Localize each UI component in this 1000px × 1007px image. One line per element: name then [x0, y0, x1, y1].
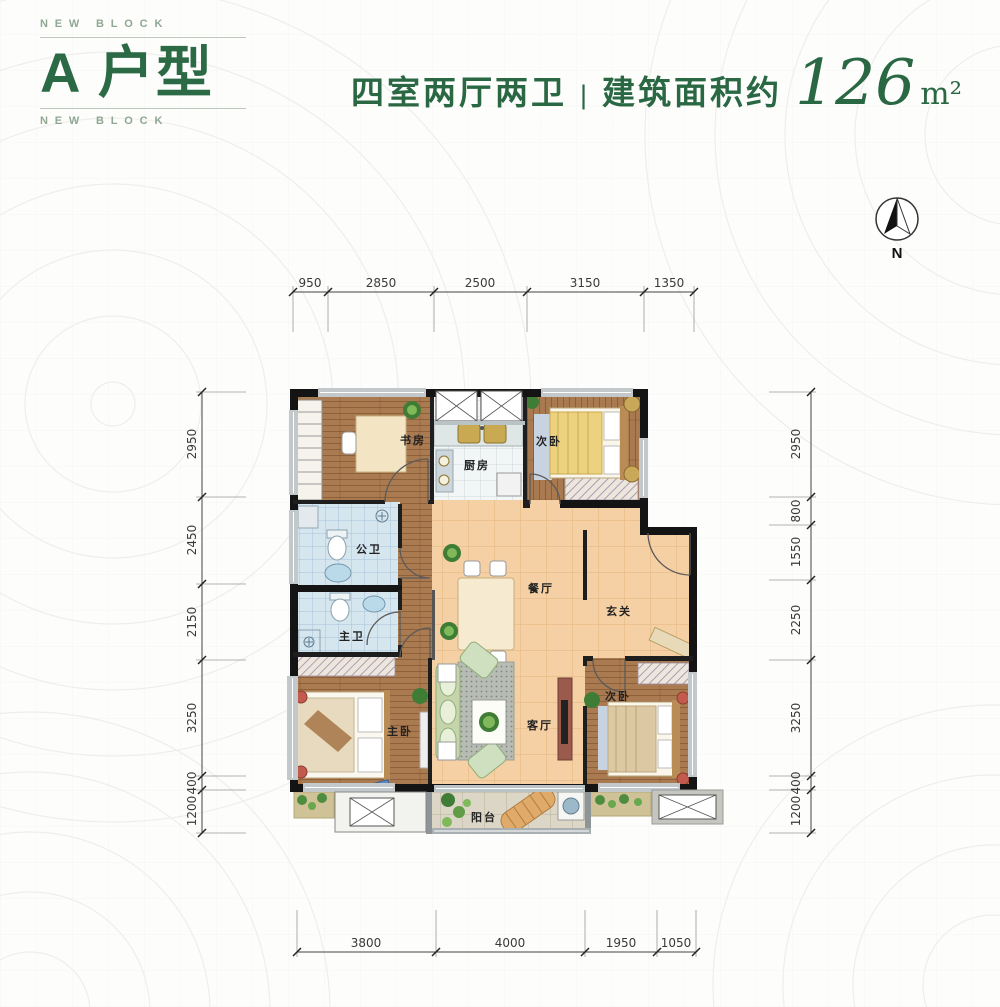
- pillow: [358, 738, 382, 772]
- desk: [356, 416, 406, 472]
- master-bedroom-label: 主卧: [387, 724, 413, 738]
- bath-cabinet: [298, 506, 318, 528]
- dim-right-5: 3250: [789, 703, 803, 734]
- dim-right-7: 1200: [789, 796, 803, 827]
- dim-top-1: 950: [299, 276, 322, 290]
- sink-icon: [458, 424, 480, 443]
- dim-top-5: 1350: [654, 276, 685, 290]
- dim-left-5: 400: [185, 772, 199, 795]
- dining-label: 餐厅: [527, 581, 554, 595]
- fridge: [497, 473, 521, 496]
- washbasin-icon: [325, 564, 351, 582]
- stool: [677, 692, 689, 704]
- study-label: 书房: [400, 433, 426, 447]
- floorplan-page: NEW BLOCK A 户型 NEW BLOCK 四室两厅两卫 | 建筑面积约 …: [0, 0, 1000, 1007]
- pillow: [358, 698, 382, 732]
- side-table: [438, 664, 456, 682]
- bedroom3-closet: [638, 663, 689, 684]
- pillow: [658, 740, 672, 768]
- plant-icon: [453, 806, 465, 818]
- plant-icon: [463, 799, 471, 807]
- area-label: 建筑面积约: [602, 66, 782, 114]
- living-label: 客厅: [526, 718, 553, 732]
- dim-left-2: 2450: [185, 525, 199, 556]
- pillow: [604, 446, 620, 474]
- headboard: [672, 700, 680, 778]
- dim-left-3: 2150: [185, 607, 199, 638]
- foyer-label: 玄关: [606, 604, 632, 618]
- nightstand: [624, 396, 640, 412]
- dim-top-4: 3150: [570, 276, 601, 290]
- spec-divider: |: [580, 80, 587, 111]
- dim-left-6: 1200: [185, 796, 199, 827]
- dresser: [420, 712, 428, 768]
- bedroom2-label: 次卧: [536, 434, 562, 448]
- area-value: 126: [795, 56, 915, 110]
- dim-top-2: 2850: [366, 276, 397, 290]
- desk-chair: [342, 432, 356, 454]
- toilet-icon: [331, 599, 349, 621]
- master-bath-label: 主卫: [339, 629, 365, 643]
- floorplan-canvas: 书房 厨房 次卧 公卫 餐厅 玄关 主卫 主卧 客厅 次卧 阳台: [0, 0, 1000, 1007]
- dim-right-6: 400: [789, 772, 803, 795]
- balcony-label: 阳台: [471, 810, 497, 824]
- washbasin-icon: [363, 596, 385, 612]
- dim-bottom-1: 3800: [351, 936, 382, 950]
- compass: N: [876, 198, 918, 262]
- dim-right-4: 2250: [789, 605, 803, 636]
- dim-top-3: 2500: [465, 276, 496, 290]
- spec-line: 四室两厅两卫 | 建筑面积约 126 m²: [351, 56, 962, 114]
- nightstand: [624, 466, 640, 482]
- toilet-icon: [328, 536, 346, 560]
- bedroom2-closet: [565, 478, 638, 500]
- bookshelf: [296, 400, 322, 500]
- brand-rule-bottom: [40, 108, 246, 109]
- brand-top-label: NEW BLOCK: [40, 18, 246, 30]
- bedroom3-label: 次卧: [605, 689, 631, 703]
- plant-icon: [441, 793, 455, 807]
- plant-icon: [584, 692, 600, 708]
- brand-block: NEW BLOCK A 户型 NEW BLOCK: [40, 18, 246, 127]
- dim-left-1: 2950: [185, 429, 199, 460]
- brand-rule-top: [40, 37, 246, 38]
- dim-bottom-4: 1050: [661, 936, 692, 950]
- layout-text: 四室两厅两卫: [351, 66, 567, 114]
- brand-bottom-label: NEW BLOCK: [40, 115, 246, 127]
- sink-icon: [484, 424, 506, 443]
- foyer-floor-upper: [585, 508, 648, 531]
- dim-bottom-3: 1950: [606, 936, 637, 950]
- dining-chair: [464, 561, 480, 576]
- plant-icon: [412, 688, 428, 704]
- dim-right-2: 800: [789, 500, 803, 523]
- dim-bottom-2: 4000: [495, 936, 526, 950]
- compass-north-label: N: [892, 245, 903, 262]
- corridor-floor: [398, 504, 432, 660]
- pillow: [658, 706, 672, 734]
- dim-left-4: 3250: [185, 703, 199, 734]
- master-closet: [294, 656, 395, 676]
- dim-right-3: 1550: [789, 537, 803, 568]
- dining-table: [458, 578, 514, 650]
- area-unit: m²: [920, 76, 962, 112]
- plant-icon: [525, 395, 539, 409]
- dim-right-1: 2950: [789, 429, 803, 460]
- tv-icon: [561, 700, 568, 744]
- side-table: [438, 742, 456, 760]
- plant-icon: [442, 817, 452, 827]
- kitchen-label: 厨房: [464, 458, 490, 472]
- dining-chair: [490, 561, 506, 576]
- unit-title: A 户型: [40, 44, 246, 101]
- pillow: [604, 412, 620, 440]
- guest-bath-label: 公卫: [356, 543, 382, 556]
